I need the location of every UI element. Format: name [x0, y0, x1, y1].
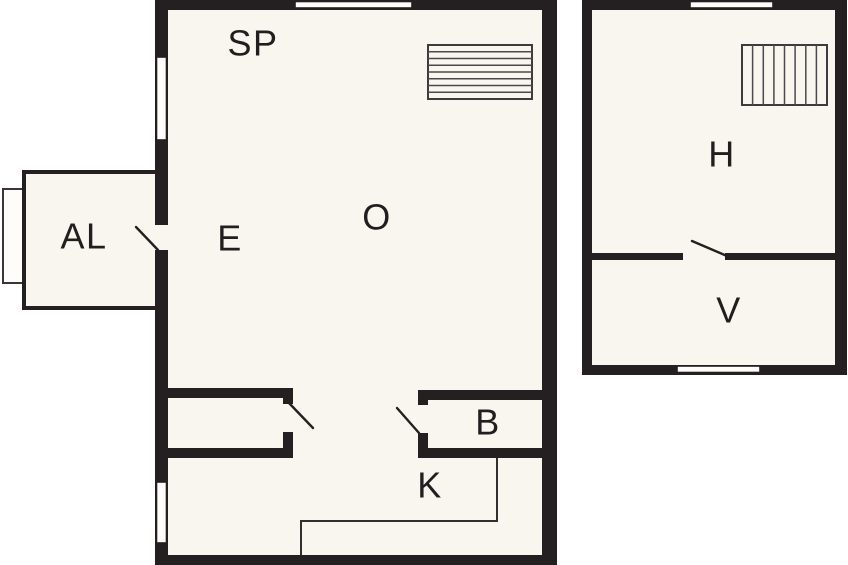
room-label-e: E — [217, 218, 243, 259]
room-label-sp: SP — [227, 23, 278, 64]
storeroom-wall-top — [163, 388, 293, 398]
room-label-o: O — [362, 197, 392, 238]
storeroom-wall-bottom — [163, 448, 293, 458]
room-label-h: H — [708, 134, 736, 175]
floor-plan-page: SP AL E O B K H V — [0, 0, 848, 565]
door-b-opening — [417, 405, 429, 433]
stairs-outbuilding-icon — [742, 45, 827, 105]
window-left-upper — [157, 57, 167, 140]
b-room-wall-bottom — [418, 448, 542, 458]
floor-plan-drawing: SP AL E O B K H V — [0, 0, 848, 565]
room-label-b: B — [475, 402, 501, 443]
stairs-main-icon — [428, 45, 532, 99]
door-al-opening — [154, 225, 169, 250]
room-label-al: AL — [60, 216, 107, 257]
outbuilding-group: H V — [582, 0, 847, 375]
main-building-group: SP AL E O B K — [3, 0, 557, 565]
outbuilding-window-top — [690, 2, 773, 9]
window-left-lower — [157, 482, 167, 543]
stairs-main-treads — [428, 52, 532, 93]
b-room-wall-top — [418, 390, 542, 400]
room-label-k: K — [417, 465, 443, 506]
window-top — [295, 2, 412, 9]
outbuilding-window-bottom — [677, 366, 760, 373]
room-label-v: V — [716, 290, 742, 331]
door-storeroom-opening — [282, 404, 294, 432]
